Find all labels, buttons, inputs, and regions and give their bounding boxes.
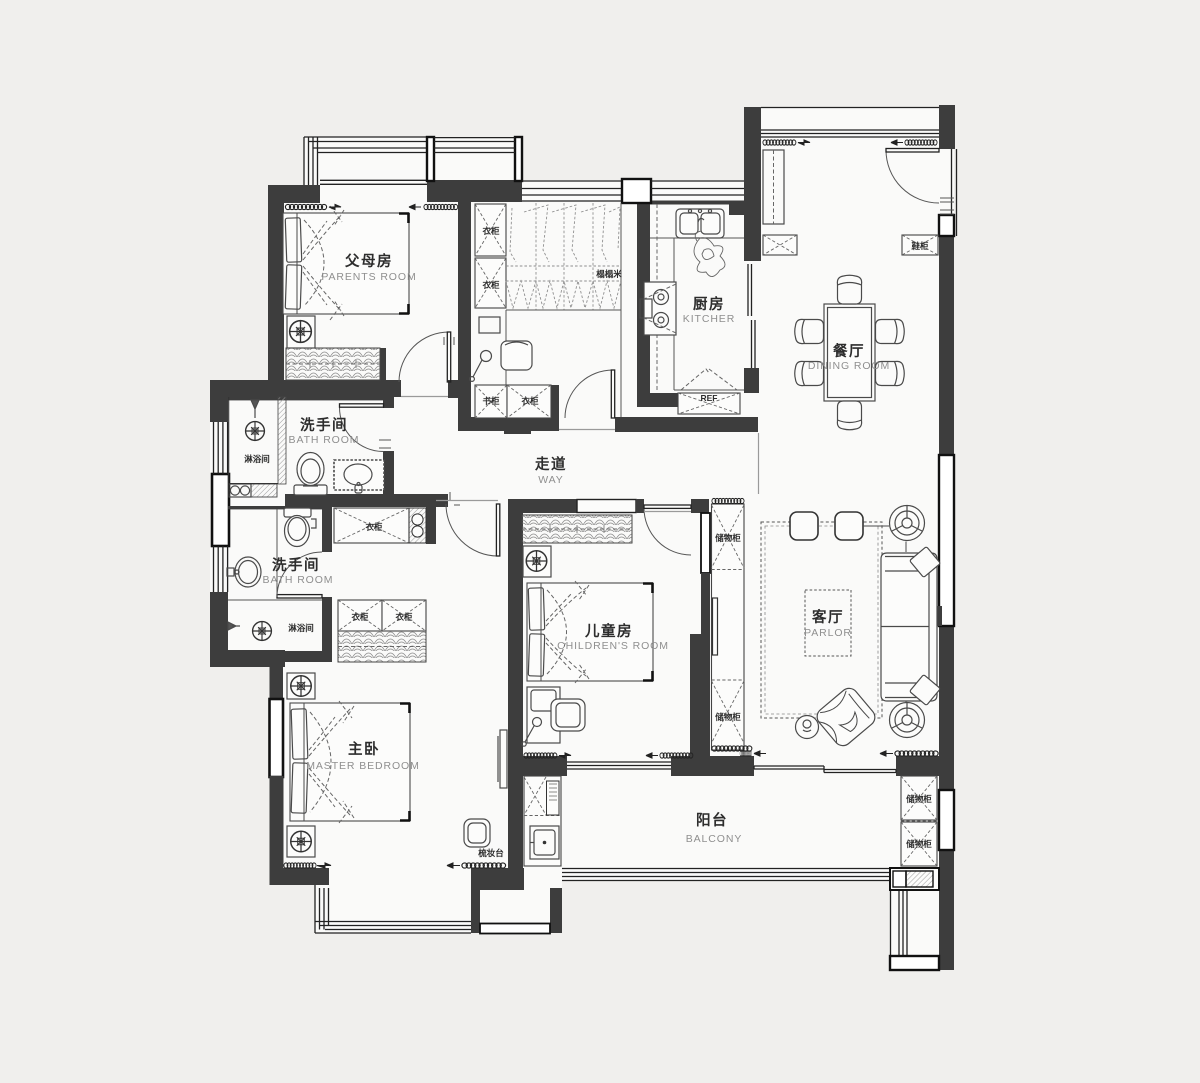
svg-text:梳妆台: 梳妆台 — [477, 848, 504, 858]
svg-text:鞋柜: 鞋柜 — [911, 241, 929, 251]
svg-text:衣柜: 衣柜 — [482, 226, 500, 236]
svg-text:MASTER BEDROOM: MASTER BEDROOM — [306, 760, 420, 772]
svg-text:洗手间: 洗手间 — [272, 556, 320, 574]
svg-text:走道: 走道 — [535, 455, 567, 473]
svg-text:储物柜: 储物柜 — [905, 794, 932, 804]
svg-text:储物柜: 储物柜 — [714, 533, 741, 543]
svg-text:衣柜: 衣柜 — [395, 612, 413, 622]
svg-text:阳台: 阳台 — [696, 811, 728, 829]
svg-text:餐厅: 餐厅 — [833, 342, 865, 360]
svg-text:KITCHER: KITCHER — [683, 313, 735, 325]
svg-text:PARLOR: PARLOR — [804, 627, 852, 639]
svg-text:BATH ROOM: BATH ROOM — [289, 434, 360, 446]
svg-text:淋浴间: 淋浴间 — [244, 454, 270, 464]
svg-text:洗手间: 洗手间 — [300, 416, 348, 434]
svg-text:衣柜: 衣柜 — [521, 396, 539, 406]
svg-text:榻榻米: 榻榻米 — [596, 269, 622, 279]
svg-text:REF: REF — [701, 393, 718, 403]
svg-text:CHILDREN'S ROOM: CHILDREN'S ROOM — [557, 640, 669, 652]
svg-text:储物柜: 储物柜 — [714, 712, 741, 722]
svg-text:衣柜: 衣柜 — [365, 522, 383, 532]
svg-text:衣柜: 衣柜 — [482, 280, 500, 290]
svg-text:厨房: 厨房 — [693, 295, 725, 313]
svg-text:BALCONY: BALCONY — [686, 833, 742, 845]
svg-text:主卧: 主卧 — [348, 740, 380, 758]
svg-text:父母房: 父母房 — [344, 252, 393, 270]
svg-text:书柜: 书柜 — [482, 396, 500, 406]
svg-text:儿童房: 儿童房 — [584, 622, 633, 640]
svg-text:BATH ROOM: BATH ROOM — [263, 574, 334, 586]
svg-text:衣柜: 衣柜 — [351, 612, 369, 622]
svg-text:储物柜: 储物柜 — [905, 839, 932, 849]
svg-text:WAY: WAY — [538, 474, 563, 486]
svg-text:PARENTS ROOM: PARENTS ROOM — [321, 271, 416, 283]
svg-text:客厅: 客厅 — [811, 608, 844, 626]
svg-text:DINING ROOM: DINING ROOM — [808, 360, 890, 372]
svg-text:淋浴间: 淋浴间 — [288, 623, 314, 633]
